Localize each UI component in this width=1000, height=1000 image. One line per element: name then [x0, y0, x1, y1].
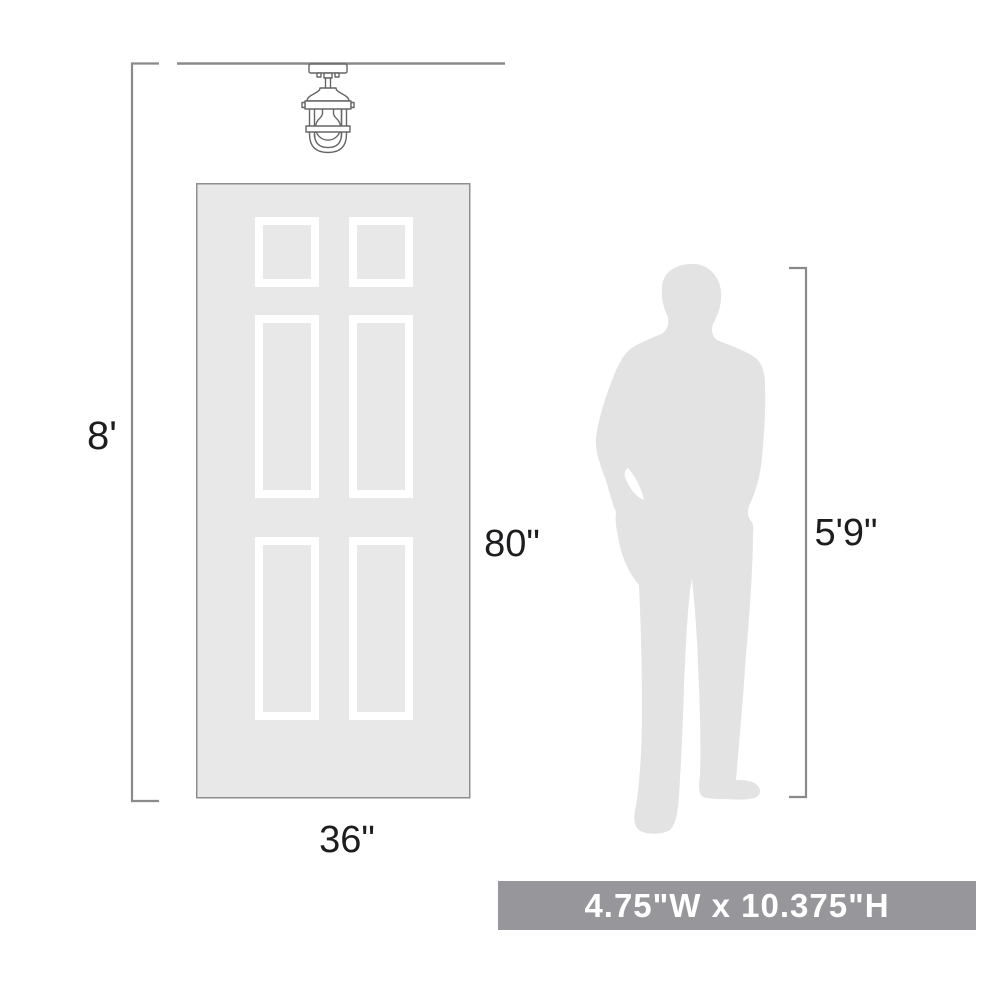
fixture-stem-top — [324, 73, 332, 78]
door-slab — [197, 184, 470, 798]
product-size-banner: 4.75"W x 10.375"H — [498, 881, 976, 930]
person-height-dimension-bracket — [789, 268, 806, 797]
door-width-label: 36" — [319, 819, 375, 861]
fixture-canopy — [309, 64, 347, 73]
fixture-screw-left — [317, 73, 321, 77]
person-height-label: 5'9" — [814, 512, 877, 554]
fixture-collar-ear-right — [351, 103, 354, 108]
fixture-bulb — [315, 109, 340, 140]
fixture-cage-band — [306, 126, 350, 132]
six-panel-door — [197, 184, 470, 798]
person-silhouette — [596, 264, 765, 834]
door-height-label: 80" — [484, 523, 540, 565]
fixture-screw-right — [335, 73, 339, 77]
fixture-collar — [305, 101, 351, 109]
ceiling-height-label: 8' — [87, 414, 117, 458]
product-dimensions-diagram: 8' 80" 36" 5'9" 4.75"W x 10.375"H — [0, 0, 1000, 1000]
product-size-label: 4.75"W x 10.375"H — [584, 887, 889, 924]
fixture-collar-ear-left — [302, 103, 305, 108]
diagram-svg: 8' 80" 36" 5'9" 4.75"W x 10.375"H — [0, 0, 1000, 1000]
fixture-fitter-dome — [307, 88, 349, 101]
ceiling-light-fixture-icon — [302, 64, 354, 153]
ceiling-height-dimension-bracket — [132, 64, 159, 802]
fixture-cage-bars — [315, 109, 342, 137]
